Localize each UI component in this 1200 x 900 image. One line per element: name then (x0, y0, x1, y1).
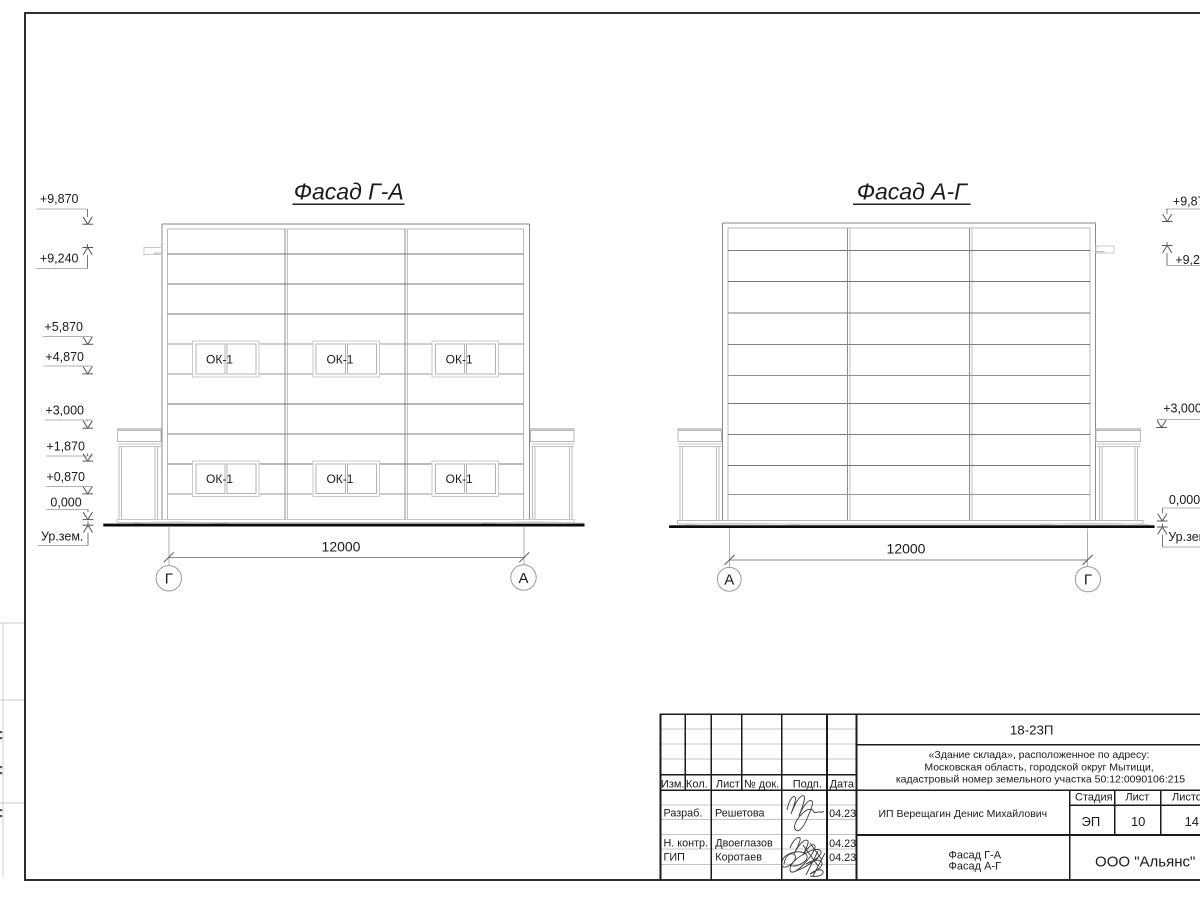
svg-text:04.23: 04.23 (829, 852, 856, 864)
svg-text:Ур.зем.: Ур.зем. (1168, 530, 1200, 544)
svg-text:+0,870: +0,870 (46, 470, 85, 484)
svg-text:+3,000: +3,000 (1163, 402, 1200, 416)
svg-text:+9,870: +9,870 (1173, 194, 1200, 208)
svg-text:+1,870: +1,870 (46, 440, 85, 454)
svg-text:А: А (518, 570, 528, 587)
svg-text:Г: Г (165, 571, 173, 588)
svg-text:№ док.: № док. (744, 778, 779, 790)
svg-text:ОК-1: ОК-1 (206, 472, 233, 486)
svg-text:А: А (724, 572, 734, 589)
svg-text:+9,240: +9,240 (1175, 253, 1200, 267)
svg-text:ОК-1: ОК-1 (326, 352, 353, 366)
svg-text:10: 10 (1131, 814, 1145, 829)
svg-text:Двоеглазов: Двоеглазов (715, 838, 773, 850)
svg-text:Лист: Лист (716, 778, 740, 790)
svg-text:12000: 12000 (322, 538, 361, 554)
svg-text:Решетова: Решетова (715, 807, 765, 819)
svg-text:Разраб.: Разраб. (664, 808, 703, 820)
svg-text:Фасад А-Г: Фасад А-Г (949, 860, 1002, 872)
svg-text:Московская область, городской: Московская область, городской округ Мыти… (924, 761, 1153, 773)
svg-text:12000: 12000 (887, 541, 926, 557)
svg-text:Н. контр.: Н. контр. (664, 837, 709, 849)
svg-text:«Здание склада», расположенное: «Здание склада», расположенное по адресу… (929, 749, 1150, 761)
svg-text:Листов: Листов (1172, 791, 1200, 803)
svg-text:Лист: Лист (1125, 791, 1149, 803)
svg-text:+9,870: +9,870 (40, 192, 79, 206)
svg-text:04.23: 04.23 (829, 808, 856, 820)
svg-text:Коротаев: Коротаев (715, 852, 762, 864)
svg-text:0,000: 0,000 (1169, 493, 1200, 507)
svg-text:Кол.: Кол. (686, 778, 708, 790)
svg-text:18-23П: 18-23П (1010, 722, 1054, 737)
svg-text:+3,000: +3,000 (45, 404, 84, 418)
svg-text:Г: Г (1084, 572, 1092, 589)
svg-text:ОК-1: ОК-1 (326, 472, 353, 486)
svg-text:ЭП: ЭП (1082, 814, 1101, 829)
svg-text:+9,240: +9,240 (40, 252, 79, 266)
svg-text:ОК-1: ОК-1 (206, 352, 233, 366)
svg-text:Изм.: Изм. (661, 778, 685, 790)
svg-text:Дата: Дата (830, 778, 855, 790)
svg-text:ОК-1: ОК-1 (446, 472, 473, 486)
svg-text:кадастровый номер земельного у: кадастровый номер земельного участка 50:… (896, 774, 1185, 786)
svg-text:14: 14 (1185, 814, 1199, 829)
svg-text:Фасад А-Г: Фасад А-Г (857, 179, 968, 205)
svg-text:ОК-1: ОК-1 (446, 352, 473, 366)
svg-text:Ур.зем.: Ур.зем. (41, 530, 83, 544)
svg-text:ИП Верещагин Денис Михайлович: ИП Верещагин Денис Михайлович (878, 808, 1047, 820)
svg-text:Подп.: Подп. (793, 778, 822, 790)
svg-text:+5,870: +5,870 (44, 320, 83, 334)
svg-text:04.23: 04.23 (829, 838, 856, 850)
svg-text:0,000: 0,000 (50, 495, 81, 509)
svg-text:ООО "Альянс": ООО "Альянс" (1095, 854, 1195, 871)
svg-text:ГИП: ГИП (664, 852, 685, 864)
svg-text:Фасад Г-А: Фасад Г-А (294, 179, 404, 205)
svg-text:Стадия: Стадия (1075, 791, 1113, 803)
svg-text:+4,870: +4,870 (45, 350, 84, 364)
